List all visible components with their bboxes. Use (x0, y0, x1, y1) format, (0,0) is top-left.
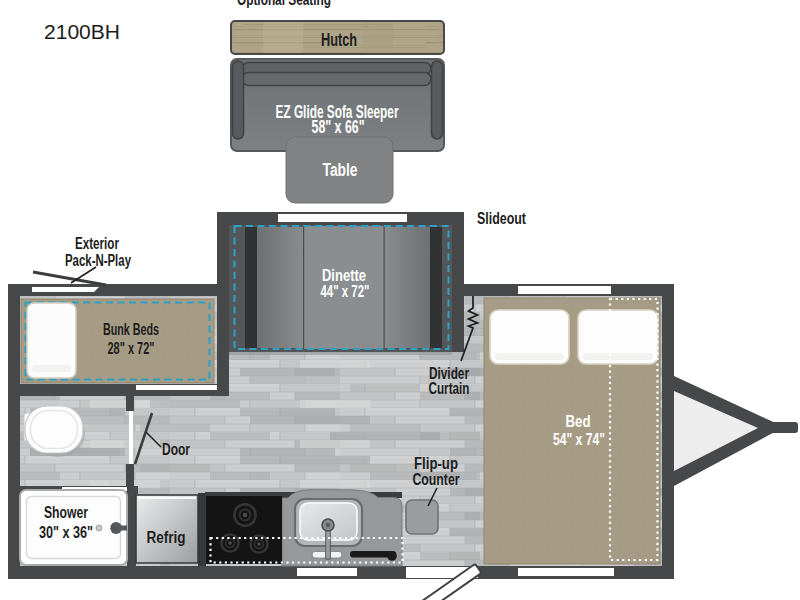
svg-text:Table: Table (323, 160, 358, 180)
svg-text:Counter: Counter (413, 471, 460, 488)
svg-text:28" x 72": 28" x 72" (108, 339, 155, 358)
svg-text:58" x 66": 58" x 66" (312, 117, 365, 137)
svg-text:Pack-N-Play: Pack-N-Play (65, 252, 131, 269)
svg-text:Flip-up: Flip-up (414, 455, 458, 472)
svg-text:Shower: Shower (44, 503, 88, 521)
svg-text:Optional Seating: Optional Seating (237, 0, 331, 9)
svg-text:Exterior: Exterior (75, 235, 119, 252)
svg-text:Slideout: Slideout (477, 209, 526, 228)
svg-text:30" x 36": 30" x 36" (39, 523, 93, 541)
svg-text:Door: Door (162, 441, 190, 458)
svg-text:Refrig: Refrig (147, 529, 186, 546)
svg-text:2100BH: 2100BH (44, 21, 120, 43)
svg-text:Curtain: Curtain (429, 380, 470, 397)
svg-text:Hutch: Hutch (321, 29, 357, 50)
svg-text:54" x 74": 54" x 74" (553, 430, 605, 449)
svg-text:Bunk Beds: Bunk Beds (103, 320, 159, 339)
svg-text:44" x 72": 44" x 72" (321, 282, 370, 301)
svg-text:Bed: Bed (566, 412, 591, 431)
